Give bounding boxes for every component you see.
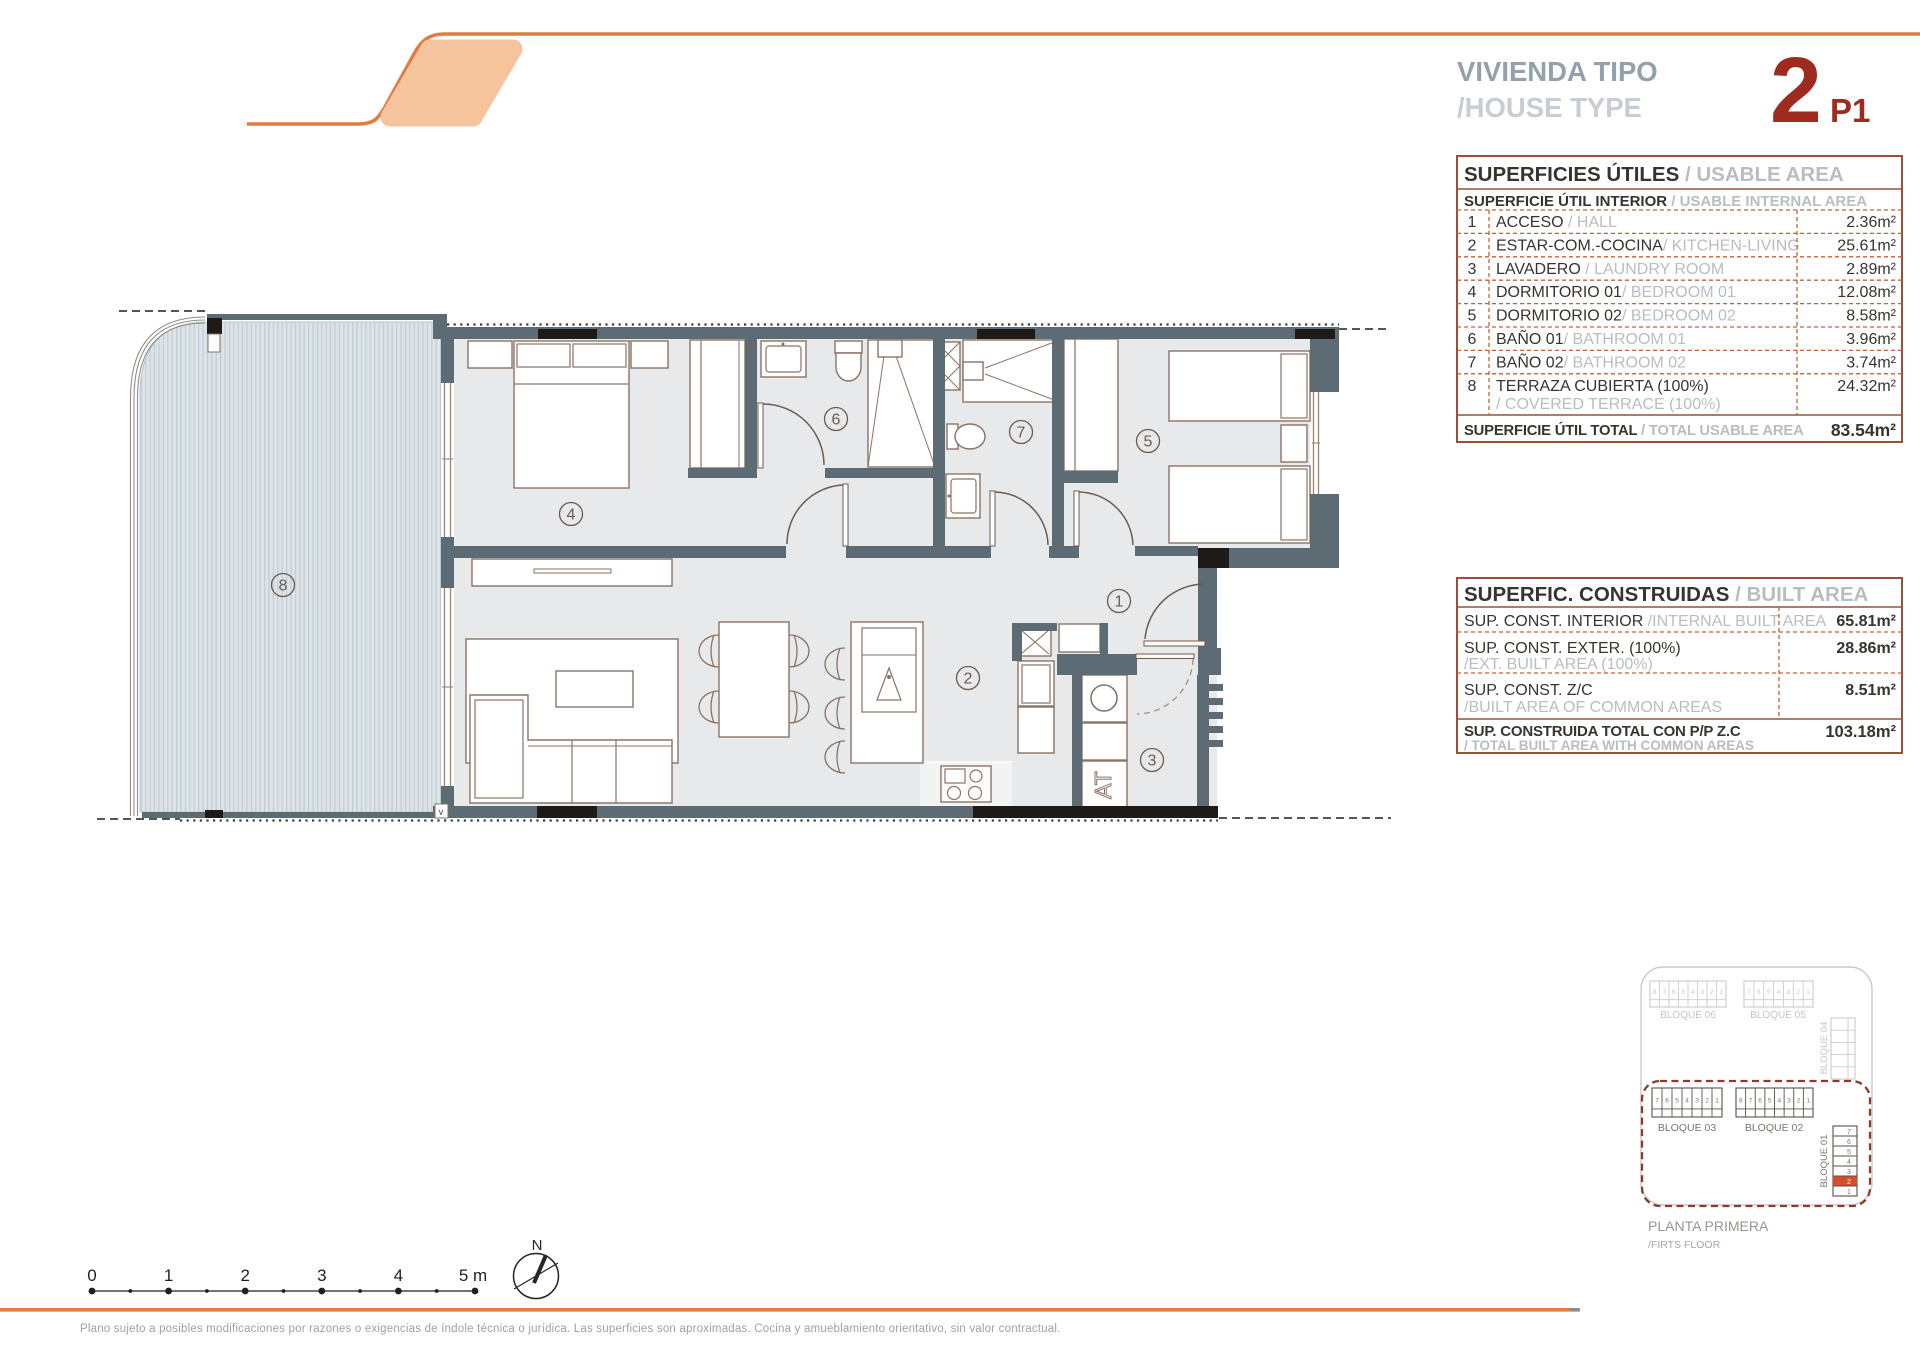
- svg-text:BLOQUE 05: BLOQUE 05: [1750, 1010, 1806, 1021]
- svg-text:24.32m²: 24.32m²: [1837, 378, 1896, 395]
- svg-text:8: 8: [279, 578, 288, 595]
- svg-text:3.96m²: 3.96m²: [1846, 331, 1896, 348]
- svg-text:SUP. CONST. INTERIOR /INTERNAL: SUP. CONST. INTERIOR /INTERNAL BUILT ARE…: [1464, 613, 1826, 630]
- svg-text:7: 7: [1655, 1098, 1659, 1105]
- svg-text:ESTAR-COM.-COCINA/ KITCHEN-LIV: ESTAR-COM.-COCINA/ KITCHEN-LIVING: [1496, 237, 1800, 254]
- svg-text:8.58m²: 8.58m²: [1846, 308, 1896, 325]
- svg-text:BLOQUE 02: BLOQUE 02: [1745, 1122, 1804, 1134]
- svg-text:SUPERFIC. CONSTRUIDAS / BUILT: SUPERFIC. CONSTRUIDAS / BUILT AREA: [1464, 583, 1869, 606]
- svg-text:BLOQUE 01: BLOQUE 01: [1819, 1135, 1830, 1188]
- svg-text:5: 5: [1144, 434, 1153, 451]
- svg-text:6: 6: [1468, 331, 1477, 348]
- svg-text:8: 8: [1739, 1098, 1743, 1105]
- svg-text:7: 7: [1847, 1129, 1851, 1136]
- svg-text:6: 6: [1847, 1139, 1851, 1146]
- svg-text:ACCESO / HALL: ACCESO / HALL: [1496, 214, 1617, 231]
- svg-text:v: v: [439, 807, 444, 817]
- svg-text:0: 0: [87, 1266, 96, 1285]
- svg-text:3: 3: [317, 1266, 326, 1285]
- svg-text:8.51m²: 8.51m²: [1845, 682, 1896, 699]
- svg-text:BAÑO 01/ BATHROOM 01: BAÑO 01/ BATHROOM 01: [1496, 328, 1686, 348]
- svg-text:BLOQUE 04: BLOQUE 04: [1819, 1022, 1830, 1075]
- svg-text:1: 1: [1806, 989, 1810, 996]
- svg-text:N: N: [532, 1237, 543, 1254]
- svg-text:/ COVERED TERRACE (100%): / COVERED TERRACE (100%): [1496, 396, 1721, 413]
- svg-text:DORMITORIO 01/ BEDROOM 01: DORMITORIO 01/ BEDROOM 01: [1496, 284, 1736, 301]
- svg-text:TERRAZA CUBIERTA (100%): TERRAZA CUBIERTA (100%): [1496, 378, 1709, 395]
- svg-text:6: 6: [1758, 1098, 1762, 1105]
- svg-text:VIVIENDA TIPO: VIVIENDA TIPO: [1457, 56, 1658, 87]
- svg-text:SUPERFICIE ÚTIL INTERIOR / USA: SUPERFICIE ÚTIL INTERIOR / USABLE INTERN…: [1464, 192, 1867, 210]
- svg-text:2: 2: [1770, 38, 1822, 142]
- svg-text:2.36m²: 2.36m²: [1846, 214, 1896, 231]
- svg-text:65.81m²: 65.81m²: [1836, 613, 1896, 630]
- svg-text:4: 4: [394, 1266, 403, 1285]
- svg-text:3: 3: [1787, 989, 1791, 996]
- svg-text:/EXT. BUILT AREA (100%): /EXT. BUILT AREA (100%): [1464, 656, 1653, 673]
- svg-text:/ TOTAL BUILT AREA WITH COMMON: / TOTAL BUILT AREA WITH COMMON AREAS: [1464, 738, 1754, 753]
- svg-text:BLOQUE 03: BLOQUE 03: [1658, 1122, 1717, 1134]
- svg-text:4: 4: [1691, 989, 1695, 996]
- svg-text:1: 1: [1719, 989, 1723, 996]
- svg-text:8: 8: [1468, 378, 1477, 395]
- svg-text:5 m: 5 m: [459, 1266, 487, 1285]
- svg-text:12.08m²: 12.08m²: [1837, 284, 1896, 301]
- svg-text:BAÑO 02/ BATHROOM 02: BAÑO 02/ BATHROOM 02: [1496, 351, 1686, 371]
- svg-text:SUP. CONST. Z/C: SUP. CONST. Z/C: [1464, 682, 1593, 699]
- svg-text:28.86m²: 28.86m²: [1836, 640, 1896, 657]
- svg-text:5: 5: [1768, 1098, 1772, 1105]
- svg-text:AT: AT: [1090, 771, 1116, 799]
- svg-text:7: 7: [1662, 989, 1666, 996]
- svg-text:4: 4: [1777, 989, 1781, 996]
- svg-text:3: 3: [1148, 753, 1157, 770]
- svg-text:LAVADERO / LAUNDRY ROOM: LAVADERO / LAUNDRY ROOM: [1496, 261, 1724, 278]
- svg-text:3: 3: [1468, 261, 1477, 278]
- svg-text:DORMITORIO 02/ BEDROOM 02: DORMITORIO 02/ BEDROOM 02: [1496, 308, 1736, 325]
- svg-text:1: 1: [164, 1266, 173, 1285]
- svg-text:6: 6: [1757, 989, 1761, 996]
- svg-text:1: 1: [1468, 214, 1477, 231]
- svg-text:PLANTA PRIMERA: PLANTA PRIMERA: [1648, 1218, 1769, 1234]
- svg-text:4: 4: [1468, 284, 1477, 301]
- svg-text:SUPERFICIE ÚTIL TOTAL / TOTAL: SUPERFICIE ÚTIL TOTAL / TOTAL USABLE ARE…: [1464, 421, 1804, 439]
- svg-text:BLOQUE 06: BLOQUE 06: [1660, 1010, 1716, 1021]
- svg-text:3: 3: [1847, 1169, 1851, 1176]
- svg-text:6: 6: [832, 412, 841, 429]
- svg-text:8: 8: [1653, 989, 1657, 996]
- svg-text:4: 4: [1777, 1098, 1781, 1105]
- svg-text:4: 4: [1847, 1159, 1851, 1166]
- svg-text:5: 5: [1681, 989, 1685, 996]
- svg-text:5: 5: [1675, 1098, 1679, 1105]
- svg-text:7: 7: [1749, 1098, 1753, 1105]
- svg-text:1: 1: [1847, 1189, 1851, 1196]
- svg-text:3.74m²: 3.74m²: [1846, 354, 1896, 371]
- svg-text:3: 3: [1787, 1098, 1791, 1105]
- svg-text:6: 6: [1665, 1098, 1669, 1105]
- svg-text:3: 3: [1700, 989, 1704, 996]
- svg-text:SUPERFICIES ÚTILES / USABLE AR: SUPERFICIES ÚTILES / USABLE AREA: [1464, 162, 1844, 186]
- svg-text:6: 6: [1672, 989, 1676, 996]
- svg-text:Plano sujeto a posibles modifi: Plano sujeto a posibles modificaciones p…: [80, 1323, 1061, 1335]
- svg-text:2: 2: [1468, 237, 1477, 254]
- svg-text:2: 2: [964, 671, 973, 688]
- svg-text:2: 2: [1797, 1098, 1801, 1105]
- svg-text:25.61m²: 25.61m²: [1837, 237, 1896, 254]
- svg-text:5: 5: [1847, 1149, 1851, 1156]
- svg-text:2: 2: [1796, 989, 1800, 996]
- svg-text:2: 2: [1710, 989, 1714, 996]
- svg-text:4: 4: [1685, 1098, 1689, 1105]
- svg-text:7: 7: [1747, 989, 1751, 996]
- svg-text:5: 5: [1468, 308, 1477, 325]
- svg-text:/FIRTS FLOOR: /FIRTS FLOOR: [1648, 1239, 1721, 1251]
- svg-text:P1: P1: [1830, 92, 1870, 129]
- svg-text:2: 2: [240, 1266, 249, 1285]
- svg-text:/BUILT AREA OF COMMON AREAS: /BUILT AREA OF COMMON AREAS: [1464, 699, 1722, 716]
- svg-text:/HOUSE TYPE: /HOUSE TYPE: [1457, 92, 1642, 123]
- svg-text:4: 4: [567, 507, 576, 524]
- svg-text:1: 1: [1806, 1098, 1810, 1105]
- svg-text:2.89m²: 2.89m²: [1846, 261, 1896, 278]
- svg-text:3: 3: [1695, 1098, 1699, 1105]
- svg-text:7: 7: [1468, 354, 1477, 371]
- svg-text:1: 1: [1115, 594, 1124, 611]
- svg-text:1: 1: [1715, 1098, 1719, 1105]
- svg-text:7: 7: [1017, 425, 1026, 442]
- svg-text:2: 2: [1705, 1098, 1709, 1105]
- svg-text:SUP. CONST. EXTER. (100%): SUP. CONST. EXTER. (100%): [1464, 640, 1681, 657]
- svg-text:103.18m²: 103.18m²: [1825, 723, 1896, 741]
- svg-text:83.54m²: 83.54m²: [1831, 420, 1896, 440]
- svg-text:2: 2: [1847, 1179, 1851, 1186]
- svg-text:5: 5: [1767, 989, 1771, 996]
